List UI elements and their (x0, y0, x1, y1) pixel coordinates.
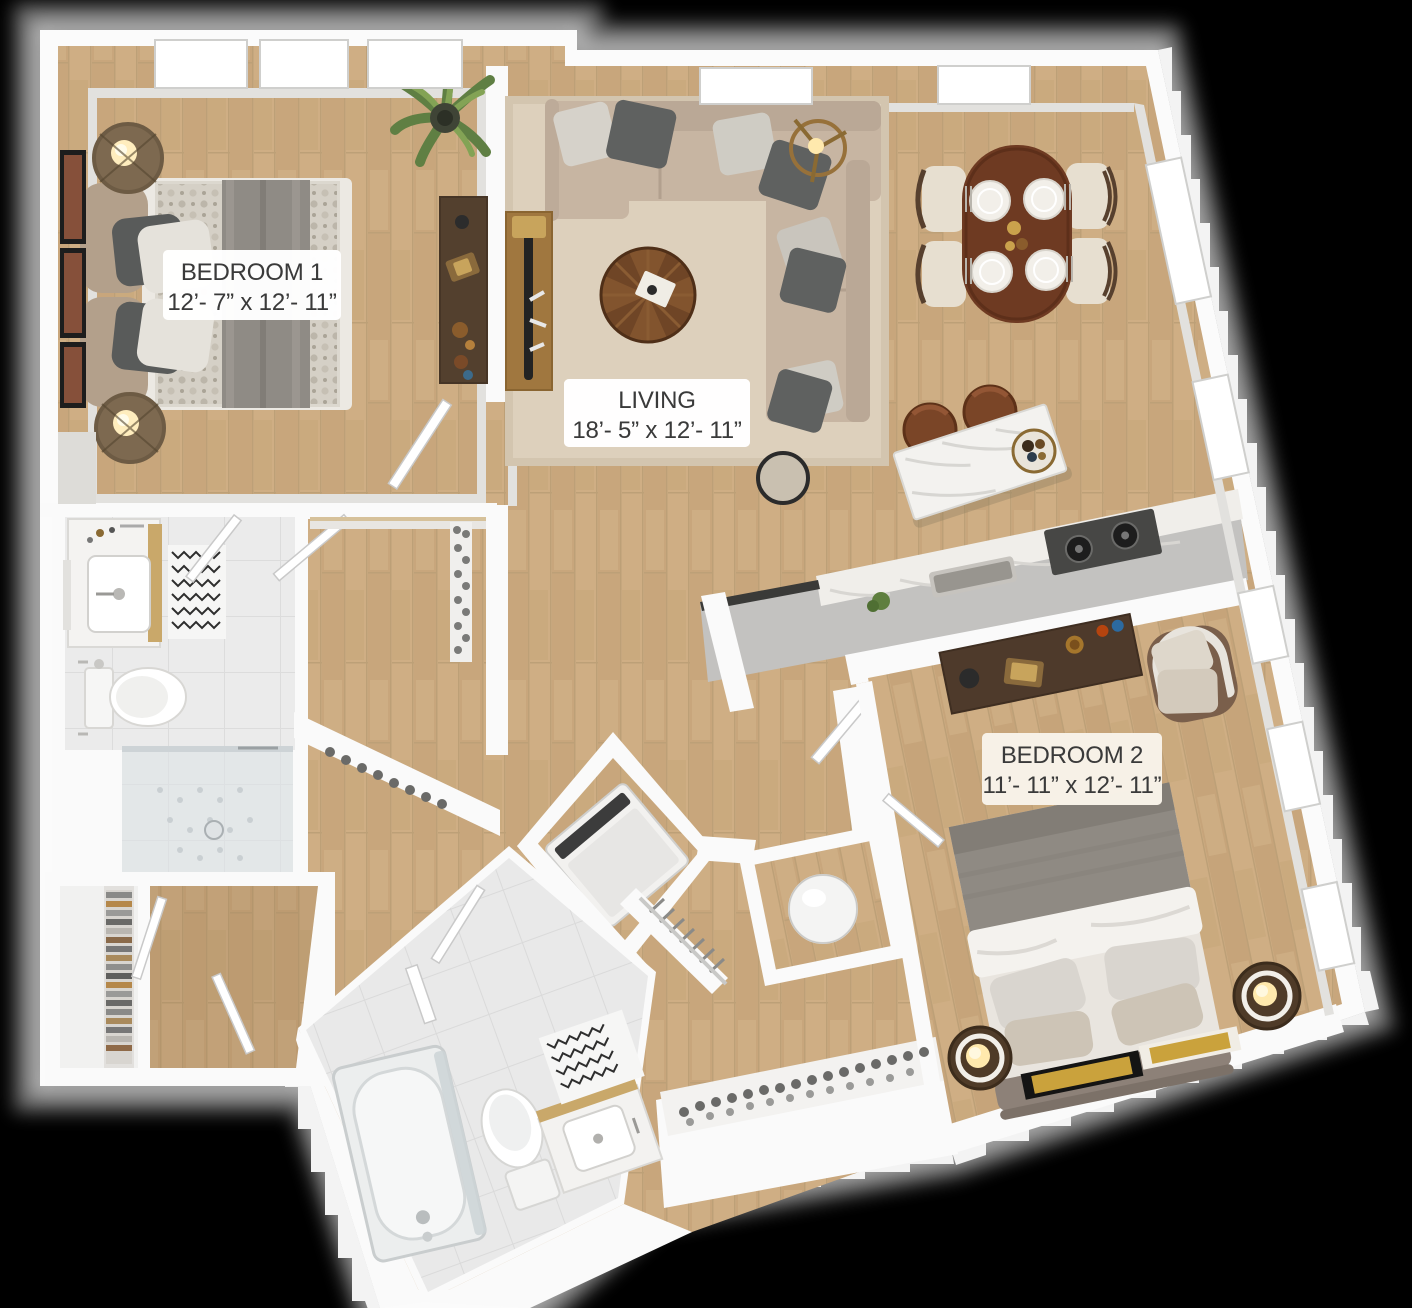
svg-text:12’- 7” x 12’- 11”: 12’- 7” x 12’- 11” (167, 289, 337, 316)
svg-text:18’- 5” x 12’- 11”: 18’- 5” x 12’- 11” (572, 417, 742, 444)
svg-text:BEDROOM 2: BEDROOM 2 (1001, 742, 1143, 769)
svg-text:11’- 11” x 12’- 11”: 11’- 11” x 12’- 11” (983, 772, 1162, 799)
svg-text:BEDROOM 1: BEDROOM 1 (181, 259, 323, 286)
svg-text:LIVING: LIVING (618, 387, 696, 414)
